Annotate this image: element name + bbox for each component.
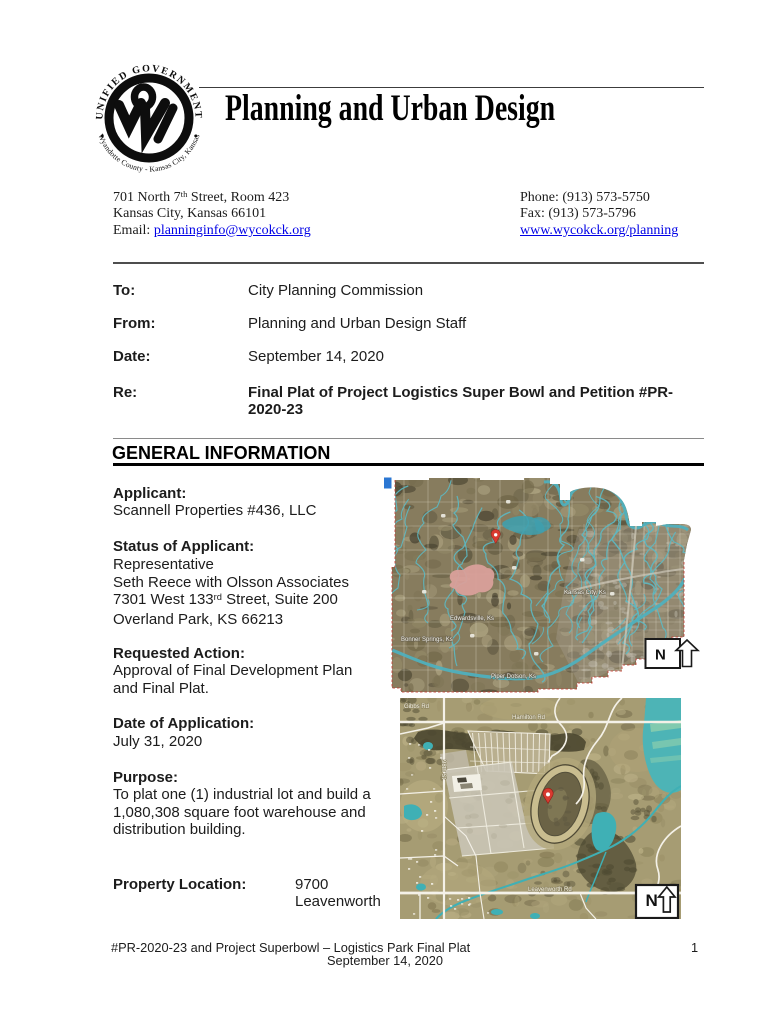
svg-text:Piper Dotson, Ks: Piper Dotson, Ks — [491, 674, 536, 680]
svg-text:Edwardsville, Ks: Edwardsville, Ks — [450, 616, 494, 622]
svg-text:Kansas City, Ks: Kansas City, Ks — [564, 590, 606, 596]
svg-text:N: N — [655, 647, 666, 664]
svg-text:98th St: 98th St — [440, 760, 446, 779]
svg-text:Leavenworth Rd: Leavenworth Rd — [528, 887, 572, 893]
svg-text:Gibbs Rd: Gibbs Rd — [404, 704, 429, 710]
svg-text:Bonner Springs, Ks: Bonner Springs, Ks — [401, 637, 453, 643]
svg-text:N: N — [646, 891, 658, 910]
svg-text:Hamilton Rd: Hamilton Rd — [512, 715, 545, 721]
